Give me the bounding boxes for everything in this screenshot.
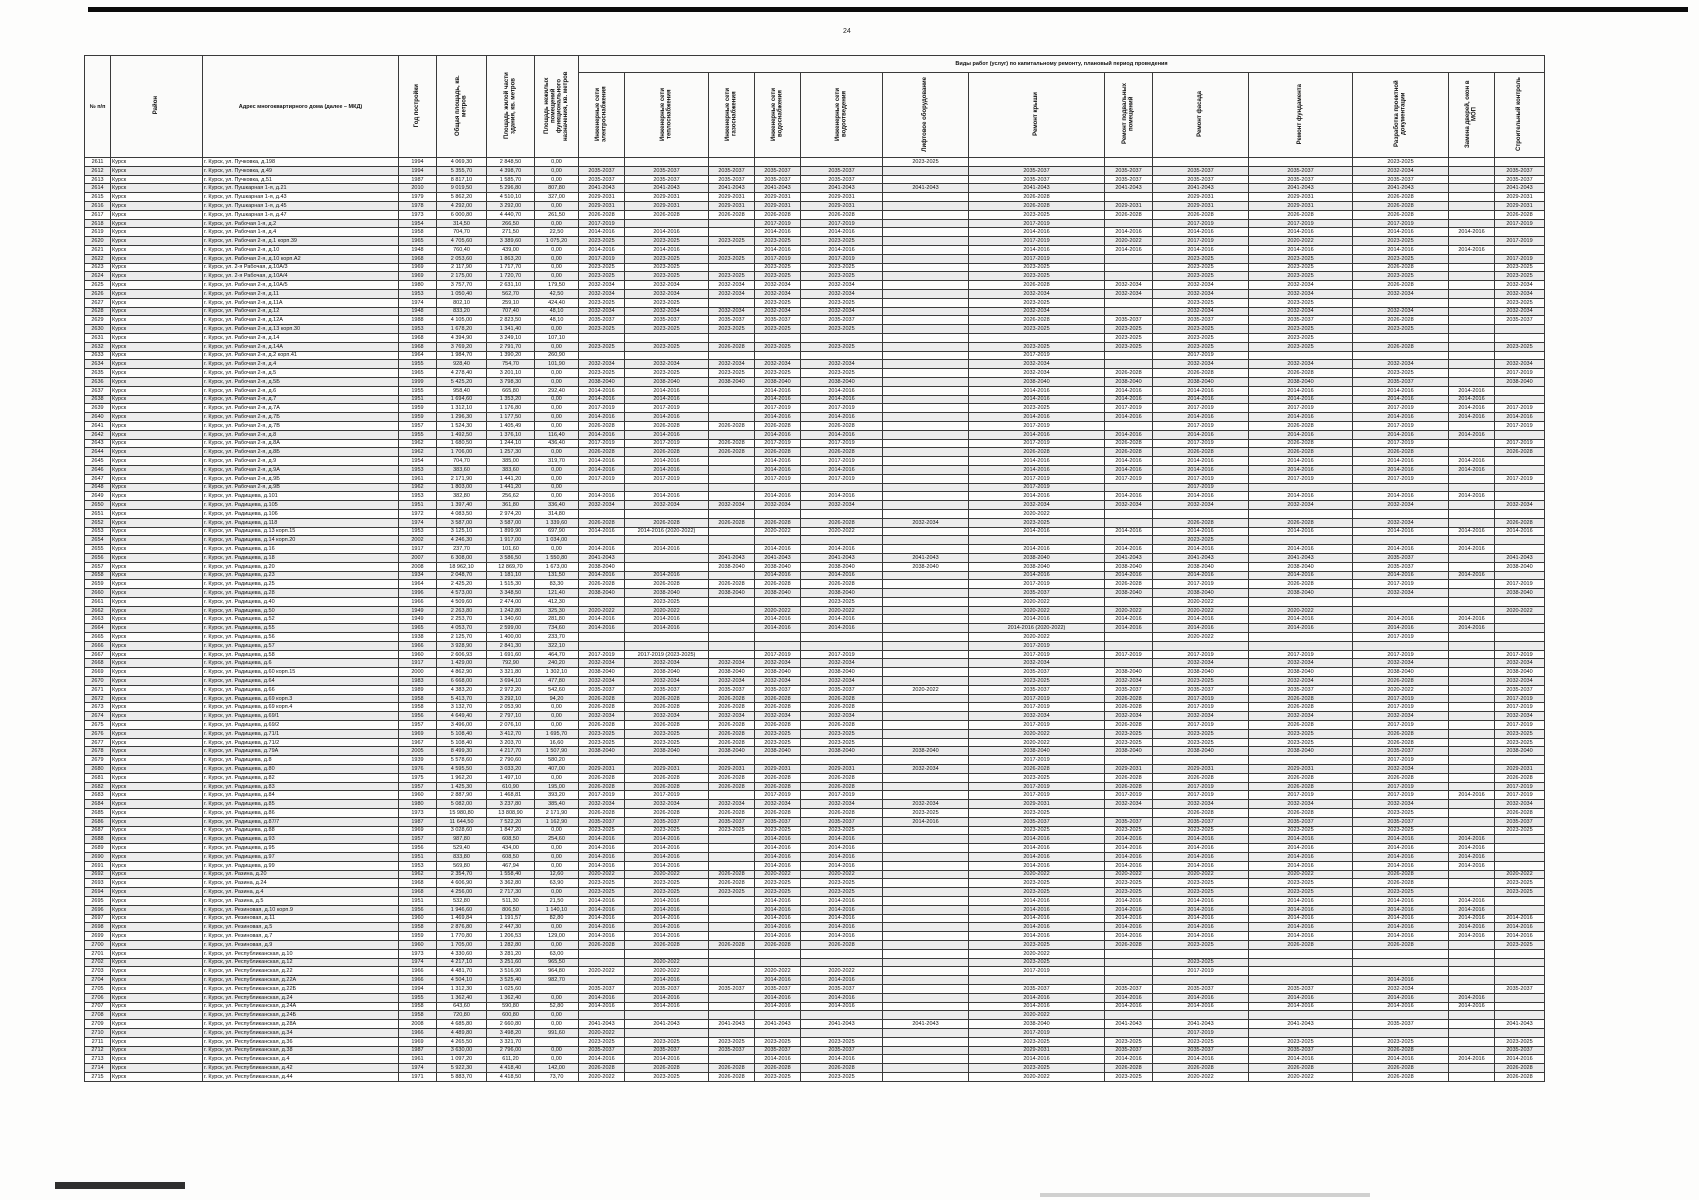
period-doors-windows (1449, 738, 1495, 747)
period-foundation (1249, 483, 1353, 492)
period-facade: 2017-2019 (1153, 421, 1249, 430)
row-number: 2705 (85, 984, 111, 993)
period-facade: 2023-2025 (1153, 940, 1249, 949)
period-sewerage: 2014-2016 (801, 923, 883, 932)
column-header-region: Район (111, 56, 203, 158)
period-roof (969, 976, 1105, 985)
region: Курск (111, 237, 203, 246)
area-living: 1 282,80 (487, 940, 535, 949)
period-water: 2014-2016 (755, 1002, 801, 1011)
area-living: 1 720,70 (487, 272, 535, 281)
period-gas (709, 536, 755, 545)
area-total: 8 817,10 (437, 175, 487, 184)
period-gas (709, 219, 755, 228)
region: Курск (111, 448, 203, 457)
period-heating: 2014-2016 (625, 853, 709, 862)
region: Курск (111, 694, 203, 703)
period-water: 2026-2028 (755, 773, 801, 782)
period-foundation: 2023-2025 (1249, 888, 1353, 897)
period-foundation: 2032-2034 (1249, 281, 1353, 290)
period-doors-windows (1449, 747, 1495, 756)
period-elevator (883, 457, 969, 466)
region: Курск (111, 879, 203, 888)
period-facade: 2014-2016 (1153, 492, 1249, 501)
period-sewerage: 2014-2016 (801, 246, 883, 255)
table-row: 2709Курскг. Курск, ул. Республиканская, … (85, 1020, 1545, 1029)
period-doors-windows (1449, 193, 1495, 202)
area-total: 704,70 (437, 457, 487, 466)
period-gas (709, 228, 755, 237)
period-gas: 2026-2028 (709, 782, 755, 791)
period-electricity: 2032-2034 (579, 677, 625, 686)
period-heating: 2026-2028 (625, 782, 709, 791)
period-design-docs: 2035-2037 (1353, 175, 1449, 184)
year-built: 1958 (399, 1011, 437, 1020)
region: Курск (111, 298, 203, 307)
period-facade: 2017-2019 (1153, 1028, 1249, 1037)
period-sewerage: 2023-2025 (801, 1072, 883, 1081)
table-row: 2677Курскг. Курск, ул. Радищева, д.71/21… (85, 738, 1545, 747)
period-facade: 2014-2016 (1153, 923, 1249, 932)
period-foundation: 2032-2034 (1249, 290, 1353, 299)
region: Курск (111, 457, 203, 466)
period-heating: 2032-2034 (625, 659, 709, 668)
period-design-docs: 2026-2028 (1353, 263, 1449, 272)
row-number: 2637 (85, 386, 111, 395)
period-facade: 2014-2016 (1153, 624, 1249, 633)
period-doors-windows (1449, 474, 1495, 483)
period-basement: 2026-2028 (1105, 448, 1153, 457)
area-total: 2 053,60 (437, 254, 487, 263)
period-water: 2023-2025 (755, 298, 801, 307)
region: Курск (111, 465, 203, 474)
scan-artifact-footer-smudge (1040, 1193, 1370, 1197)
period-water (755, 509, 801, 518)
year-built: 1994 (399, 984, 437, 993)
table-row: 2657Курскг. Курск, ул. Радищева, д.20200… (85, 562, 1545, 571)
period-sewerage: 2032-2034 (801, 290, 883, 299)
period-water: 2023-2025 (755, 342, 801, 351)
period-electricity: 2032-2034 (579, 307, 625, 316)
period-design-docs: 2026-2028 (1353, 193, 1449, 202)
period-heating: 2023-2025 (625, 254, 709, 263)
period-foundation: 2041-2043 (1249, 184, 1353, 193)
region: Курск (111, 773, 203, 782)
period-construction-control: 2038-2040 (1495, 668, 1545, 677)
period-electricity: 2032-2034 (579, 712, 625, 721)
period-foundation: 2023-2025 (1249, 254, 1353, 263)
year-built: 1960 (399, 650, 437, 659)
period-water (755, 1011, 801, 1020)
period-sewerage: 2026-2028 (801, 809, 883, 818)
period-elevator: 2023-2025 (883, 809, 969, 818)
area-nonresidential: 542,60 (535, 685, 579, 694)
area-nonresidential: 477,80 (535, 677, 579, 686)
period-gas: 2035-2037 (709, 316, 755, 325)
table-row: 2687Курскг. Курск, ул. Радищева, д.88196… (85, 826, 1545, 835)
table-row: 2643Курскг. Курск, ул. Рабочая 2-я, д.8А… (85, 439, 1545, 448)
period-foundation: 2014-2016 (1249, 624, 1353, 633)
period-gas: 2026-2028 (709, 342, 755, 351)
period-foundation: 2023-2025 (1249, 1037, 1353, 1046)
year-built: 1956 (399, 712, 437, 721)
period-electricity: 2026-2028 (579, 1064, 625, 1073)
area-nonresidential: 0,00 (535, 853, 579, 862)
period-doors-windows (1449, 333, 1495, 342)
area-living: 1 863,20 (487, 254, 535, 263)
period-gas: 2035-2037 (709, 166, 755, 175)
period-sewerage: 2014-2016 (801, 932, 883, 941)
period-foundation: 2035-2037 (1249, 166, 1353, 175)
period-foundation: 2026-2028 (1249, 448, 1353, 457)
region: Курск (111, 518, 203, 527)
area-nonresidential: 48,10 (535, 316, 579, 325)
period-roof: 2017-2019 (969, 219, 1105, 228)
period-elevator (883, 993, 969, 1002)
region: Курск (111, 430, 203, 439)
area-living: 600,80 (487, 1011, 535, 1020)
address: г. Курск, ул. Радищева, д.14 корп.20 (203, 536, 399, 545)
region: Курск (111, 650, 203, 659)
period-design-docs: 2017-2019 (1353, 439, 1449, 448)
period-elevator (883, 166, 969, 175)
period-design-docs: 2014-2016 (1353, 413, 1449, 422)
period-elevator (883, 976, 969, 985)
address: г. Курск, ул. Радищева, д.69 корп.3 (203, 694, 399, 703)
period-electricity: 2020-2022 (579, 606, 625, 615)
area-total: 3 769,20 (437, 342, 487, 351)
row-number: 2621 (85, 246, 111, 255)
period-heating: 2032-2034 (625, 281, 709, 290)
period-heating: 2014-2016 (625, 624, 709, 633)
period-heating: 2026-2028 (625, 1064, 709, 1073)
row-number: 2666 (85, 641, 111, 650)
period-construction-control: 2032-2034 (1495, 307, 1545, 316)
period-basement: 2014-2016 (1105, 395, 1153, 404)
address: г. Курск, ул. Рабочая 2-я, д.14А (203, 342, 399, 351)
year-built: 1987 (399, 817, 437, 826)
period-electricity: 2020-2022 (579, 1072, 625, 1081)
period-heating: 2035-2037 (625, 166, 709, 175)
row-number: 2703 (85, 967, 111, 976)
area-living: 806,50 (487, 905, 535, 914)
period-design-docs: 2014-2016 (1353, 976, 1449, 985)
table-row: 2675Курскг. Курск, ул. Радищева, д.69/21… (85, 721, 1545, 730)
year-built: 1987 (399, 1046, 437, 1055)
period-heating: 2014-2016 (625, 993, 709, 1002)
area-total: 1 097,20 (437, 1055, 487, 1064)
address: г. Курск, ул. 2-я Рабочая, д.10А/3 (203, 263, 399, 272)
region: Курск (111, 342, 203, 351)
period-heating: 2014-2016 (2020-2022) (625, 527, 709, 536)
period-design-docs: 2026-2028 (1353, 1064, 1449, 1073)
period-sewerage: 2023-2025 (801, 729, 883, 738)
period-gas: 2032-2034 (709, 659, 755, 668)
period-basement: 2014-2016 (1105, 993, 1153, 1002)
period-electricity: 2020-2022 (579, 1028, 625, 1037)
period-roof: 2035-2037 (969, 175, 1105, 184)
period-sewerage: 2035-2037 (801, 984, 883, 993)
period-heating: 2041-2043 (625, 1020, 709, 1029)
period-construction-control (1495, 896, 1545, 905)
period-facade: 2035-2037 (1153, 1046, 1249, 1055)
row-number: 2613 (85, 175, 111, 184)
table-row: 2668Курскг. Курск, ул. Радищева, д.61917… (85, 659, 1545, 668)
period-foundation: 2026-2028 (1249, 694, 1353, 703)
period-heating: 2023-2025 (625, 263, 709, 272)
region: Курск (111, 844, 203, 853)
address: г. Курск, ул. Радищева, д.69/1 (203, 712, 399, 721)
area-living: 1 691,60 (487, 650, 535, 659)
period-electricity: 2041-2043 (579, 553, 625, 562)
period-water: 2014-2016 (755, 395, 801, 404)
year-built: 1957 (399, 421, 437, 430)
period-roof: 2014-2016 (969, 527, 1105, 536)
period-sewerage (801, 641, 883, 650)
period-doors-windows (1449, 553, 1495, 562)
row-number: 2652 (85, 518, 111, 527)
period-facade: 2023-2025 (1153, 826, 1249, 835)
area-nonresidential: 0,00 (535, 773, 579, 782)
table-row: 2621Курскг. Курск, ул. Рабочая 2-я, д.10… (85, 246, 1545, 255)
area-total: 1 524,30 (437, 421, 487, 430)
area-total: 1 962,20 (437, 773, 487, 782)
period-electricity: 2014-2016 (579, 914, 625, 923)
area-nonresidential: 195,00 (535, 782, 579, 791)
period-doors-windows (1449, 677, 1495, 686)
period-elevator (883, 316, 969, 325)
period-facade: 2026-2028 (1153, 1064, 1249, 1073)
period-roof: 2032-2034 (969, 712, 1105, 721)
year-built: 1968 (399, 888, 437, 897)
area-living: 467,94 (487, 861, 535, 870)
table-row: 2654Курскг. Курск, ул. Радищева, д.14 ко… (85, 536, 1545, 545)
row-number: 2670 (85, 677, 111, 686)
period-heating: 2026-2028 (625, 703, 709, 712)
period-elevator (883, 791, 969, 800)
period-facade (1153, 1011, 1249, 1020)
year-built: 1958 (399, 1002, 437, 1011)
period-basement (1105, 641, 1153, 650)
period-gas: 2026-2028 (709, 210, 755, 219)
period-water: 2017-2019 (755, 439, 801, 448)
address: г. Курск, ул. Республиканская, д.24 (203, 993, 399, 1002)
period-doors-windows (1449, 597, 1495, 606)
area-total: 1 429,00 (437, 659, 487, 668)
year-built: 1974 (399, 958, 437, 967)
area-total: 4 069,30 (437, 158, 487, 167)
period-basement: 2035-2037 (1105, 1046, 1153, 1055)
table-row: 2705Курскг. Курск, ул. Республиканская, … (85, 984, 1545, 993)
period-heating: 2014-2016 (625, 835, 709, 844)
period-facade: 2014-2016 (1153, 571, 1249, 580)
period-water: 2023-2025 (755, 263, 801, 272)
period-design-docs: 2014-2016 (1353, 932, 1449, 941)
address: г. Курск, ул. Республиканская, д.22 (203, 967, 399, 976)
period-electricity: 2020-2022 (579, 870, 625, 879)
period-foundation: 2026-2028 (1249, 210, 1353, 219)
period-foundation: 2026-2028 (1249, 940, 1353, 949)
period-heating: 2038-2040 (625, 589, 709, 598)
period-foundation: 2035-2037 (1249, 1046, 1353, 1055)
period-sewerage: 2014-2016 (801, 905, 883, 914)
period-gas: 2032-2034 (709, 307, 755, 316)
period-doors-windows: 2014-2016 (1449, 791, 1495, 800)
row-number: 2676 (85, 729, 111, 738)
area-total: 3 928,90 (437, 641, 487, 650)
period-water: 2014-2016 (755, 571, 801, 580)
year-built: 1976 (399, 765, 437, 774)
period-electricity: 2026-2028 (579, 448, 625, 457)
period-design-docs: 2023-2025 (1353, 826, 1449, 835)
period-construction-control: 2035-2037 (1495, 166, 1545, 175)
period-facade (1153, 509, 1249, 518)
period-sewerage: 2026-2028 (801, 773, 883, 782)
period-foundation: 2014-2016 (1249, 246, 1353, 255)
period-sewerage: 2017-2019 (801, 474, 883, 483)
table-row: 2627Курскг. Курск, ул. Рабочая 2-я, д.11… (85, 298, 1545, 307)
period-facade: 2017-2019 (1153, 703, 1249, 712)
row-number: 2673 (85, 703, 111, 712)
period-sewerage: 2014-2016 (801, 853, 883, 862)
year-built: 1974 (399, 298, 437, 307)
period-basement: 2014-2016 (1105, 386, 1153, 395)
row-number: 2665 (85, 633, 111, 642)
period-doors-windows: 2014-2016 (1449, 430, 1495, 439)
area-total: 5 355,70 (437, 166, 487, 175)
period-heating: 2023-2025 (625, 325, 709, 334)
period-facade: 2023-2025 (1153, 325, 1249, 334)
table-row: 2664Курскг. Курск, ул. Радищева, д.55196… (85, 624, 1545, 633)
period-sewerage (801, 333, 883, 342)
period-elevator (883, 712, 969, 721)
address: г. Курск, ул. Резиновая, д.7 (203, 932, 399, 941)
area-living: 3 203,70 (487, 738, 535, 747)
period-sewerage: 2017-2019 (801, 219, 883, 228)
address: г. Курск, ул. Рабочая 1-я, д.4 (203, 228, 399, 237)
period-water: 2023-2025 (755, 738, 801, 747)
area-total: 5 425,20 (437, 377, 487, 386)
period-elevator (883, 835, 969, 844)
period-basement: 2035-2037 (1105, 685, 1153, 694)
address: г. Курск, ул. Рабочая 2-я, д.9А (203, 465, 399, 474)
period-elevator (883, 879, 969, 888)
period-elevator (883, 272, 969, 281)
area-total: 1 312,10 (437, 404, 487, 413)
year-built: 1965 (399, 369, 437, 378)
period-doors-windows (1449, 888, 1495, 897)
region: Курск (111, 1064, 203, 1073)
period-foundation: 2026-2028 (1249, 369, 1353, 378)
column-header-construction-control: Строительный контроль (1495, 73, 1545, 158)
area-total: 4 481,70 (437, 967, 487, 976)
period-electricity: 2014-2016 (579, 615, 625, 624)
period-facade: 2017-2019 (1153, 967, 1249, 976)
period-construction-control (1495, 905, 1545, 914)
area-total: 2 425,20 (437, 580, 487, 589)
period-construction-control: 2014-2016 (1495, 914, 1545, 923)
period-heating: 2026-2028 (625, 694, 709, 703)
period-foundation: 2020-2022 (1249, 870, 1353, 879)
period-elevator (883, 580, 969, 589)
region: Курск (111, 580, 203, 589)
period-basement: 2035-2037 (1105, 984, 1153, 993)
period-roof: 2017-2019 (969, 474, 1105, 483)
address: г. Курск, ул. Радищева, д.82 (203, 773, 399, 782)
period-roof: 2014-2016 (969, 923, 1105, 932)
address: г. Курск, ул. Радищева, д.71/2 (203, 738, 399, 747)
table-row: 2628Курскг. Курск, ул. Рабочая 2-я, д.12… (85, 307, 1545, 316)
period-design-docs: 2014-2016 (1353, 853, 1449, 862)
period-facade: 2017-2019 (1153, 791, 1249, 800)
period-basement: 2014-2016 (1105, 413, 1153, 422)
period-facade: 2038-2040 (1153, 668, 1249, 677)
period-design-docs: 2014-2016 (1353, 615, 1449, 624)
region: Курск (111, 492, 203, 501)
area-living: 1 181,10 (487, 571, 535, 580)
period-water: 2035-2037 (755, 166, 801, 175)
table-row: 2632Курскг. Курск, ул. Рабочая 2-я, д.14… (85, 342, 1545, 351)
row-number: 2657 (85, 562, 111, 571)
column-header-area-total: Общая площадь, кв. метров (437, 56, 487, 158)
period-electricity: 2014-2016 (579, 844, 625, 853)
period-construction-control: 2035-2037 (1495, 817, 1545, 826)
period-design-docs (1353, 509, 1449, 518)
period-roof: 2023-2025 (969, 677, 1105, 686)
region: Курск (111, 439, 203, 448)
area-total: 4 330,60 (437, 949, 487, 958)
period-gas (709, 615, 755, 624)
area-nonresidential: 0,00 (535, 158, 579, 167)
period-facade: 2032-2034 (1153, 800, 1249, 809)
area-nonresidential: 325,30 (535, 606, 579, 615)
period-water: 2038-2040 (755, 562, 801, 571)
period-gas: 2026-2028 (709, 721, 755, 730)
address: г. Курск, ул. Республиканская, д.22Б (203, 984, 399, 993)
area-total: 4 292,00 (437, 202, 487, 211)
period-foundation: 2038-2040 (1249, 377, 1353, 386)
period-gas (709, 395, 755, 404)
period-facade: 2017-2019 (1153, 721, 1249, 730)
period-water: 2014-2016 (755, 861, 801, 870)
work-types-group-header: Виды работ (услуг) по капитальному ремон… (579, 56, 1545, 73)
region: Курск (111, 967, 203, 976)
row-number: 2631 (85, 333, 111, 342)
area-total: 5 578,60 (437, 756, 487, 765)
area-living: 1 177,50 (487, 413, 535, 422)
period-construction-control: 2032-2034 (1495, 659, 1545, 668)
period-doors-windows (1449, 369, 1495, 378)
region: Курск (111, 861, 203, 870)
row-number: 2654 (85, 536, 111, 545)
period-design-docs: 2014-2016 (1353, 835, 1449, 844)
period-foundation (1249, 536, 1353, 545)
year-built: 1966 (399, 597, 437, 606)
period-sewerage: 2014-2016 (801, 395, 883, 404)
period-electricity: 2023-2025 (579, 369, 625, 378)
period-doors-windows (1449, 342, 1495, 351)
address: г. Курск, ул. Рабочая 2-я, д.7А (203, 404, 399, 413)
period-sewerage: 2014-2016 (801, 993, 883, 1002)
period-heating: 2014-2016 (625, 1055, 709, 1064)
region: Курск (111, 316, 203, 325)
period-construction-control: 2026-2028 (1495, 1064, 1545, 1073)
period-electricity: 2014-2016 (579, 527, 625, 536)
period-facade: 2017-2019 (1153, 782, 1249, 791)
period-foundation: 2020-2022 (1249, 237, 1353, 246)
period-electricity: 2023-2025 (579, 738, 625, 747)
period-design-docs: 2017-2019 (1353, 421, 1449, 430)
